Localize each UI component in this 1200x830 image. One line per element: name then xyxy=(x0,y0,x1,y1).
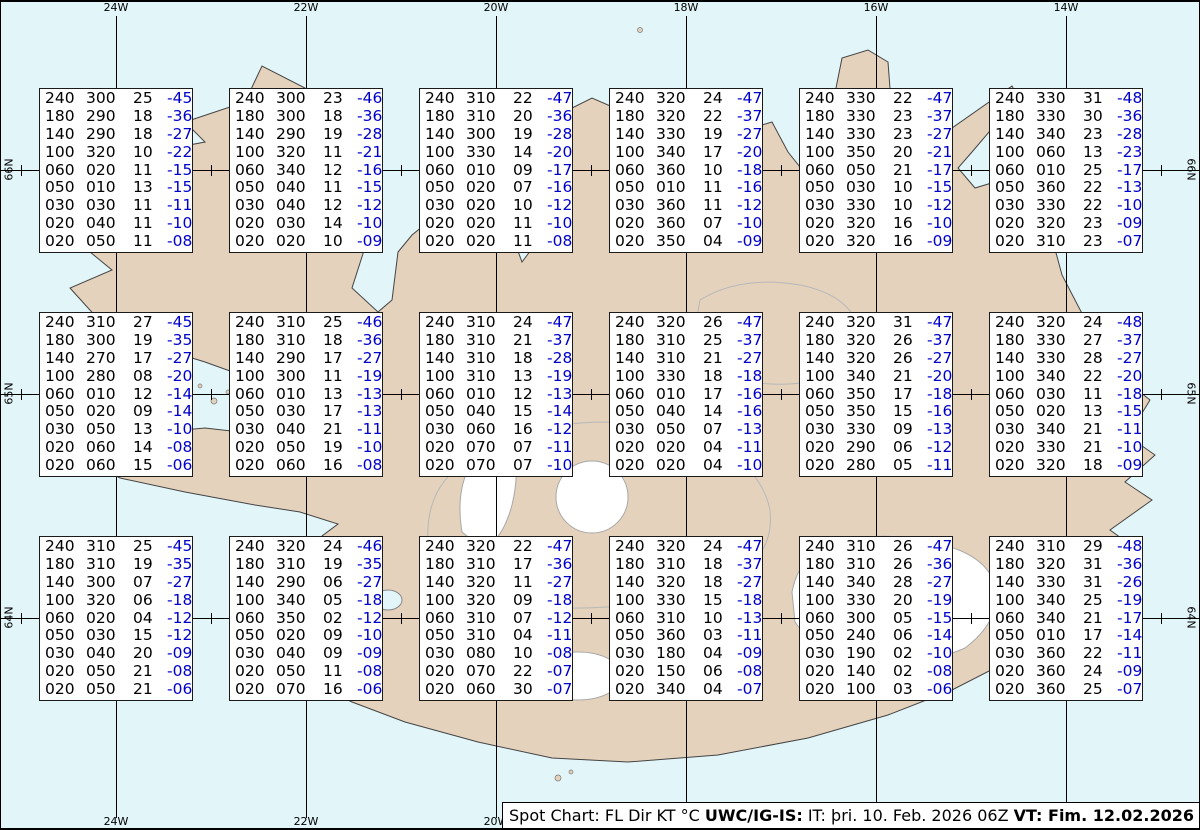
flight-level-value: 050 xyxy=(45,403,86,421)
flight-level-value: 140 xyxy=(425,574,466,592)
temp-value: -16 xyxy=(737,179,762,197)
temp-value: -45 xyxy=(167,538,192,556)
flight-level-value: 020 xyxy=(995,663,1036,681)
graticule-cross xyxy=(16,170,27,171)
wind-speed-value: 22 xyxy=(513,538,547,556)
graticule-cross xyxy=(966,394,977,395)
flight-level-value: 020 xyxy=(425,663,466,681)
wind-speed-value: 22 xyxy=(513,663,547,681)
wind-direction-value: 020 xyxy=(656,457,703,475)
temp-value: -18 xyxy=(737,162,762,180)
spot-data-row: 10032010-22 xyxy=(40,144,192,162)
temp-value: -11 xyxy=(547,627,572,645)
wind-direction-value: 030 xyxy=(276,403,323,421)
spot-data-row: 10032011-21 xyxy=(230,144,382,162)
wind-speed-value: 20 xyxy=(133,645,167,663)
wind-direction-value: 340 xyxy=(656,144,703,162)
wind-speed-value: 17 xyxy=(323,350,357,368)
lon-label-top: 20W xyxy=(481,2,511,14)
temp-value: -37 xyxy=(547,332,572,350)
wind-direction-value: 340 xyxy=(1036,610,1083,628)
spot-data-row: 14029017-27 xyxy=(230,350,382,368)
flight-level-value: 050 xyxy=(45,179,86,197)
spot-data-row: 18030018-36 xyxy=(230,108,382,126)
flight-level-value: 020 xyxy=(45,215,86,233)
spot-data-row: 06031010-13 xyxy=(610,610,762,628)
temp-value: -27 xyxy=(927,350,952,368)
wind-direction-value: 310 xyxy=(656,556,703,574)
wind-direction-value: 320 xyxy=(466,538,513,556)
wind-direction-value: 020 xyxy=(276,233,323,251)
graticule-cross xyxy=(1156,618,1167,619)
wind-direction-value: 020 xyxy=(466,215,513,233)
wind-speed-value: 12 xyxy=(323,197,357,215)
wind-direction-value: 150 xyxy=(656,663,703,681)
spot-data-row: 18031020-36 xyxy=(420,108,572,126)
flight-level-value: 240 xyxy=(425,538,466,556)
wind-direction-value: 060 xyxy=(276,457,323,475)
wind-direction-value: 330 xyxy=(656,592,703,610)
spot-data-row: 03004009-09 xyxy=(230,645,382,663)
temp-value: -37 xyxy=(737,332,762,350)
wind-direction-value: 340 xyxy=(1036,126,1083,144)
spot-box-r2c2: 24032022-4718031017-3614032011-271003200… xyxy=(419,536,573,701)
wind-speed-value: 24 xyxy=(513,314,547,332)
wind-direction-value: 070 xyxy=(466,663,513,681)
spot-data-row: 18031025-37 xyxy=(610,332,762,350)
temp-value: -28 xyxy=(547,350,572,368)
flight-level-value: 020 xyxy=(235,215,276,233)
wind-speed-value: 14 xyxy=(323,215,357,233)
temp-value: -27 xyxy=(167,574,192,592)
wind-speed-value: 11 xyxy=(703,197,737,215)
small-island xyxy=(569,770,573,774)
temp-value: -07 xyxy=(737,681,762,699)
spot-data-row: 10034025-19 xyxy=(990,592,1142,610)
wind-speed-value: 26 xyxy=(893,332,927,350)
spot-data-row: 18032022-37 xyxy=(610,108,762,126)
wind-direction-value: 290 xyxy=(846,439,893,457)
temp-value: -17 xyxy=(927,162,952,180)
spot-data-row: 10034017-20 xyxy=(610,144,762,162)
wind-direction-value: 310 xyxy=(466,350,513,368)
spot-data-row: 10034005-18 xyxy=(230,592,382,610)
spot-data-row: 10028008-20 xyxy=(40,368,192,386)
temp-value: -18 xyxy=(737,368,762,386)
wind-direction-value: 040 xyxy=(276,179,323,197)
wind-direction-value: 140 xyxy=(846,663,893,681)
wind-direction-value: 320 xyxy=(1036,556,1083,574)
spot-data-row: 14034023-28 xyxy=(990,126,1142,144)
wind-speed-value: 21 xyxy=(1083,439,1117,457)
spot-data-row: 06001013-13 xyxy=(230,386,382,404)
wind-speed-value: 09 xyxy=(513,162,547,180)
flight-level-value: 020 xyxy=(615,215,656,233)
wind-speed-value: 22 xyxy=(513,90,547,108)
small-island xyxy=(198,384,202,388)
spot-data-row: 24030025-45 xyxy=(40,90,192,108)
flight-level-value: 240 xyxy=(995,90,1036,108)
graticule-cross xyxy=(396,618,407,619)
temp-value: -10 xyxy=(357,627,382,645)
temp-value: -36 xyxy=(927,556,952,574)
spot-data-row: 05031004-11 xyxy=(420,627,572,645)
flight-level-value: 240 xyxy=(615,314,656,332)
temp-value: -20 xyxy=(1117,368,1142,386)
lat-label-left: 65N xyxy=(3,379,16,409)
temp-value: -06 xyxy=(357,681,382,699)
wind-direction-value: 320 xyxy=(1036,314,1083,332)
spot-data-row: 06035017-18 xyxy=(800,386,952,404)
wind-speed-value: 25 xyxy=(1083,162,1117,180)
wind-direction-value: 040 xyxy=(276,197,323,215)
spot-data-row: 18030019-35 xyxy=(40,332,192,350)
flight-level-value: 050 xyxy=(425,627,466,645)
wind-direction-value: 340 xyxy=(1036,368,1083,386)
spot-data-row: 06035002-12 xyxy=(230,610,382,628)
wind-speed-value: 07 xyxy=(513,610,547,628)
wind-speed-value: 20 xyxy=(893,592,927,610)
wind-direction-value: 350 xyxy=(656,233,703,251)
spot-data-row: 03006016-12 xyxy=(420,421,572,439)
spot-data-row: 14033028-27 xyxy=(990,350,1142,368)
flight-level-value: 020 xyxy=(45,457,86,475)
wind-speed-value: 13 xyxy=(1083,144,1117,162)
flight-level-value: 030 xyxy=(995,197,1036,215)
wind-direction-value: 070 xyxy=(276,681,323,699)
wind-speed-value: 11 xyxy=(703,179,737,197)
graticule-cross xyxy=(966,170,977,171)
lat-label-right: 65N xyxy=(1185,379,1198,409)
wind-direction-value: 280 xyxy=(846,457,893,475)
spot-data-row: 24031026-47 xyxy=(800,538,952,556)
flight-level-value: 240 xyxy=(235,538,276,556)
wind-speed-value: 09 xyxy=(893,421,927,439)
flight-level-value: 180 xyxy=(995,556,1036,574)
flight-level-value: 060 xyxy=(615,386,656,404)
wind-speed-value: 22 xyxy=(703,108,737,126)
spot-data-row: 05036003-11 xyxy=(610,627,762,645)
wind-direction-value: 340 xyxy=(1036,421,1083,439)
temp-value: -36 xyxy=(1117,556,1142,574)
wind-direction-value: 310 xyxy=(466,108,513,126)
flight-level-value: 030 xyxy=(235,421,276,439)
temp-value: -09 xyxy=(737,233,762,251)
flight-level-value: 060 xyxy=(995,386,1036,404)
temp-value: -09 xyxy=(167,645,192,663)
wind-direction-value: 330 xyxy=(846,197,893,215)
temp-value: -14 xyxy=(927,627,952,645)
wind-direction-value: 350 xyxy=(846,386,893,404)
graticule-cross xyxy=(16,394,27,395)
spot-data-row: 24031029-48 xyxy=(990,538,1142,556)
temp-value: -26 xyxy=(1117,574,1142,592)
wind-speed-value: 17 xyxy=(1083,627,1117,645)
temp-value: -37 xyxy=(737,556,762,574)
graticule-cross xyxy=(586,618,597,619)
spot-box-r1c4: 24032031-4718032026-3714032026-271003402… xyxy=(799,312,953,477)
spot-data-row: 02005019-10 xyxy=(230,439,382,457)
spot-data-row: 24033022-47 xyxy=(800,90,952,108)
spot-box-r1c0: 24031027-4518030019-3514027017-271002800… xyxy=(39,312,193,477)
temp-value: -28 xyxy=(547,126,572,144)
wind-direction-value: 050 xyxy=(846,162,893,180)
spot-data-row: 03034021-11 xyxy=(990,421,1142,439)
temp-value: -47 xyxy=(547,90,572,108)
wind-direction-value: 320 xyxy=(86,144,133,162)
temp-value: -11 xyxy=(357,421,382,439)
flight-level-value: 020 xyxy=(425,233,466,251)
wind-direction-value: 320 xyxy=(846,215,893,233)
wind-direction-value: 340 xyxy=(276,162,323,180)
flight-level-value: 020 xyxy=(615,439,656,457)
spot-data-row: 24031027-45 xyxy=(40,314,192,332)
flight-level-value: 180 xyxy=(615,556,656,574)
wind-speed-value: 18 xyxy=(513,350,547,368)
flight-level-value: 030 xyxy=(45,421,86,439)
temp-value: -18 xyxy=(737,592,762,610)
spot-data-row: 02010003-06 xyxy=(800,681,952,699)
flight-level-value: 180 xyxy=(995,108,1036,126)
temp-value: -10 xyxy=(927,215,952,233)
spot-data-row: 02005021-08 xyxy=(40,663,192,681)
flight-level-value: 020 xyxy=(805,233,846,251)
spot-data-row: 03019002-10 xyxy=(800,645,952,663)
flight-level-value: 180 xyxy=(45,332,86,350)
wind-speed-value: 17 xyxy=(133,350,167,368)
flight-level-value: 240 xyxy=(45,90,86,108)
wind-direction-value: 300 xyxy=(86,332,133,350)
temp-value: -17 xyxy=(1117,162,1142,180)
wind-direction-value: 020 xyxy=(466,197,513,215)
wind-speed-value: 06 xyxy=(703,663,737,681)
temp-value: -27 xyxy=(547,574,572,592)
wind-direction-value: 320 xyxy=(1036,457,1083,475)
wind-speed-value: 13 xyxy=(133,179,167,197)
flight-level-value: 180 xyxy=(615,108,656,126)
wind-direction-value: 330 xyxy=(846,126,893,144)
temp-value: -20 xyxy=(547,144,572,162)
lat-label-right: 64N xyxy=(1185,603,1198,633)
wind-direction-value: 340 xyxy=(276,592,323,610)
spot-data-row: 10006013-23 xyxy=(990,144,1142,162)
wind-direction-value: 020 xyxy=(1036,403,1083,421)
wind-direction-value: 310 xyxy=(656,610,703,628)
wind-speed-value: 09 xyxy=(323,645,357,663)
flight-level-value: 100 xyxy=(425,368,466,386)
wind-speed-value: 19 xyxy=(513,126,547,144)
spot-data-row: 02005011-08 xyxy=(230,663,382,681)
wind-direction-value: 340 xyxy=(846,574,893,592)
flight-level-value: 020 xyxy=(425,439,466,457)
wind-speed-value: 30 xyxy=(1083,108,1117,126)
status-bar-source: UWC/IG-IS: xyxy=(705,806,803,825)
spot-data-row: 05003017-13 xyxy=(230,403,382,421)
temp-value: -08 xyxy=(167,233,192,251)
temp-value: -27 xyxy=(927,126,952,144)
flight-level-value: 100 xyxy=(995,592,1036,610)
wind-speed-value: 04 xyxy=(513,627,547,645)
wind-speed-value: 11 xyxy=(323,368,357,386)
spot-data-row: 03018004-09 xyxy=(610,645,762,663)
temp-value: -10 xyxy=(547,457,572,475)
flight-level-value: 050 xyxy=(235,627,276,645)
wind-direction-value: 320 xyxy=(846,332,893,350)
spot-data-row: 03003011-11 xyxy=(40,197,192,215)
spot-data-row: 14029006-27 xyxy=(230,574,382,592)
wind-direction-value: 240 xyxy=(846,627,893,645)
wind-direction-value: 310 xyxy=(656,332,703,350)
wind-direction-value: 330 xyxy=(656,368,703,386)
wind-speed-value: 11 xyxy=(323,663,357,681)
flight-level-value: 060 xyxy=(45,162,86,180)
temp-value: -10 xyxy=(167,215,192,233)
wind-direction-value: 320 xyxy=(86,592,133,610)
spot-data-row: 24032024-46 xyxy=(230,538,382,556)
temp-value: -27 xyxy=(737,350,762,368)
wind-speed-value: 21 xyxy=(1083,421,1117,439)
wind-speed-value: 19 xyxy=(133,332,167,350)
wind-direction-value: 310 xyxy=(466,368,513,386)
status-bar-issue-time: IT: þri. 10. Feb. 2026 06Z xyxy=(803,806,1014,825)
wind-direction-value: 010 xyxy=(466,162,513,180)
flight-level-value: 020 xyxy=(805,439,846,457)
wind-speed-value: 15 xyxy=(133,627,167,645)
flight-level-value: 060 xyxy=(995,162,1036,180)
status-bar: Spot Chart: FL Dir KT °C UWC/IG-IS: IT: … xyxy=(502,802,1200,830)
wind-direction-value: 050 xyxy=(86,421,133,439)
wind-direction-value: 100 xyxy=(846,681,893,699)
wind-speed-value: 11 xyxy=(513,215,547,233)
spot-data-row: 02036025-07 xyxy=(990,681,1142,699)
spot-data-row: 10032009-18 xyxy=(420,592,572,610)
flight-level-value: 020 xyxy=(805,457,846,475)
wind-speed-value: 11 xyxy=(133,215,167,233)
temp-value: -06 xyxy=(927,681,952,699)
temp-value: -35 xyxy=(167,332,192,350)
spot-data-row: 10034022-20 xyxy=(990,368,1142,386)
wind-speed-value: 07 xyxy=(513,457,547,475)
map-border-left xyxy=(0,0,1,830)
flight-level-value: 100 xyxy=(45,368,86,386)
spot-data-row: 18033027-37 xyxy=(990,332,1142,350)
temp-value: -07 xyxy=(1117,233,1142,251)
temp-value: -07 xyxy=(547,663,572,681)
lat-label-left: 66N xyxy=(3,155,16,185)
flight-level-value: 020 xyxy=(235,233,276,251)
graticule-cross xyxy=(396,170,407,171)
wind-direction-value: 320 xyxy=(276,144,323,162)
wind-speed-value: 15 xyxy=(513,403,547,421)
flight-level-value: 240 xyxy=(995,538,1036,556)
temp-value: -27 xyxy=(927,574,952,592)
wind-direction-value: 290 xyxy=(276,126,323,144)
spot-box-r1c5: 24032024-4818033027-3714033028-271003402… xyxy=(989,312,1143,477)
spot-data-row: 18032026-37 xyxy=(800,332,952,350)
wind-speed-value: 18 xyxy=(1083,457,1117,475)
spot-box-r2c0: 24031025-4518031019-3514030007-271003200… xyxy=(39,536,193,701)
spot-box-r2c4: 24031026-4718031026-3614034028-271003302… xyxy=(799,536,953,701)
wind-direction-value: 340 xyxy=(1036,592,1083,610)
flight-level-value: 100 xyxy=(425,592,466,610)
graticule-cross xyxy=(1156,394,1167,395)
wind-direction-value: 040 xyxy=(276,645,323,663)
temp-value: -21 xyxy=(357,144,382,162)
temp-value: -10 xyxy=(167,421,192,439)
temp-value: -14 xyxy=(1117,627,1142,645)
flight-level-value: 020 xyxy=(995,439,1036,457)
flight-level-value: 240 xyxy=(45,314,86,332)
flight-level-value: 020 xyxy=(615,457,656,475)
temp-value: -48 xyxy=(1117,314,1142,332)
temp-value: -08 xyxy=(547,233,572,251)
spot-data-row: 14033031-26 xyxy=(990,574,1142,592)
temp-value: -46 xyxy=(357,538,382,556)
wind-speed-value: 18 xyxy=(703,556,737,574)
spot-data-row: 06030005-15 xyxy=(800,610,952,628)
spot-data-row: 18032031-36 xyxy=(990,556,1142,574)
wind-speed-value: 20 xyxy=(893,144,927,162)
flight-level-value: 140 xyxy=(995,350,1036,368)
wind-direction-value: 300 xyxy=(276,368,323,386)
spot-data-row: 05002009-14 xyxy=(40,403,192,421)
flight-level-value: 140 xyxy=(615,126,656,144)
spot-data-row: 24032024-48 xyxy=(990,314,1142,332)
temp-value: -12 xyxy=(737,197,762,215)
graticule-cross xyxy=(586,170,597,171)
flight-level-value: 030 xyxy=(425,197,466,215)
wind-direction-value: 310 xyxy=(466,332,513,350)
flight-level-value: 140 xyxy=(995,574,1036,592)
temp-value: -37 xyxy=(737,108,762,126)
spot-data-row: 03004012-12 xyxy=(230,197,382,215)
wind-speed-value: 22 xyxy=(1083,197,1117,215)
wind-speed-value: 23 xyxy=(1083,126,1117,144)
wind-direction-value: 050 xyxy=(86,681,133,699)
temp-value: -27 xyxy=(737,126,762,144)
flight-level-value: 020 xyxy=(235,681,276,699)
wind-speed-value: 19 xyxy=(703,126,737,144)
spot-data-row: 02015006-08 xyxy=(610,663,762,681)
small-island xyxy=(638,28,643,33)
wind-speed-value: 06 xyxy=(893,627,927,645)
wind-speed-value: 26 xyxy=(703,314,737,332)
status-bar-title: Spot Chart: FL Dir KT °C xyxy=(509,806,705,825)
flight-level-value: 100 xyxy=(235,144,276,162)
wind-direction-value: 020 xyxy=(656,439,703,457)
flight-level-value: 020 xyxy=(45,439,86,457)
temp-value: -48 xyxy=(1117,538,1142,556)
wind-speed-value: 08 xyxy=(133,368,167,386)
wind-speed-value: 09 xyxy=(133,403,167,421)
flight-level-value: 240 xyxy=(805,90,846,108)
wind-speed-value: 11 xyxy=(133,233,167,251)
flight-level-value: 180 xyxy=(45,108,86,126)
spot-box-r0c3: 24032024-4718032022-3714033019-271003401… xyxy=(609,88,763,253)
spot-chart-canvas: 24W24W22W22W20W20W18W18W16W16W14W14W66N6… xyxy=(0,0,1200,830)
temp-value: -27 xyxy=(1117,350,1142,368)
wind-speed-value: 26 xyxy=(893,556,927,574)
wind-speed-value: 07 xyxy=(703,421,737,439)
wind-direction-value: 310 xyxy=(466,90,513,108)
wind-direction-value: 070 xyxy=(466,457,513,475)
lon-label-top: 24W xyxy=(101,2,131,14)
temp-value: -23 xyxy=(1117,144,1142,162)
temp-value: -36 xyxy=(547,108,572,126)
flight-level-value: 020 xyxy=(995,233,1036,251)
flight-level-value: 050 xyxy=(995,403,1036,421)
temp-value: -10 xyxy=(927,645,952,663)
